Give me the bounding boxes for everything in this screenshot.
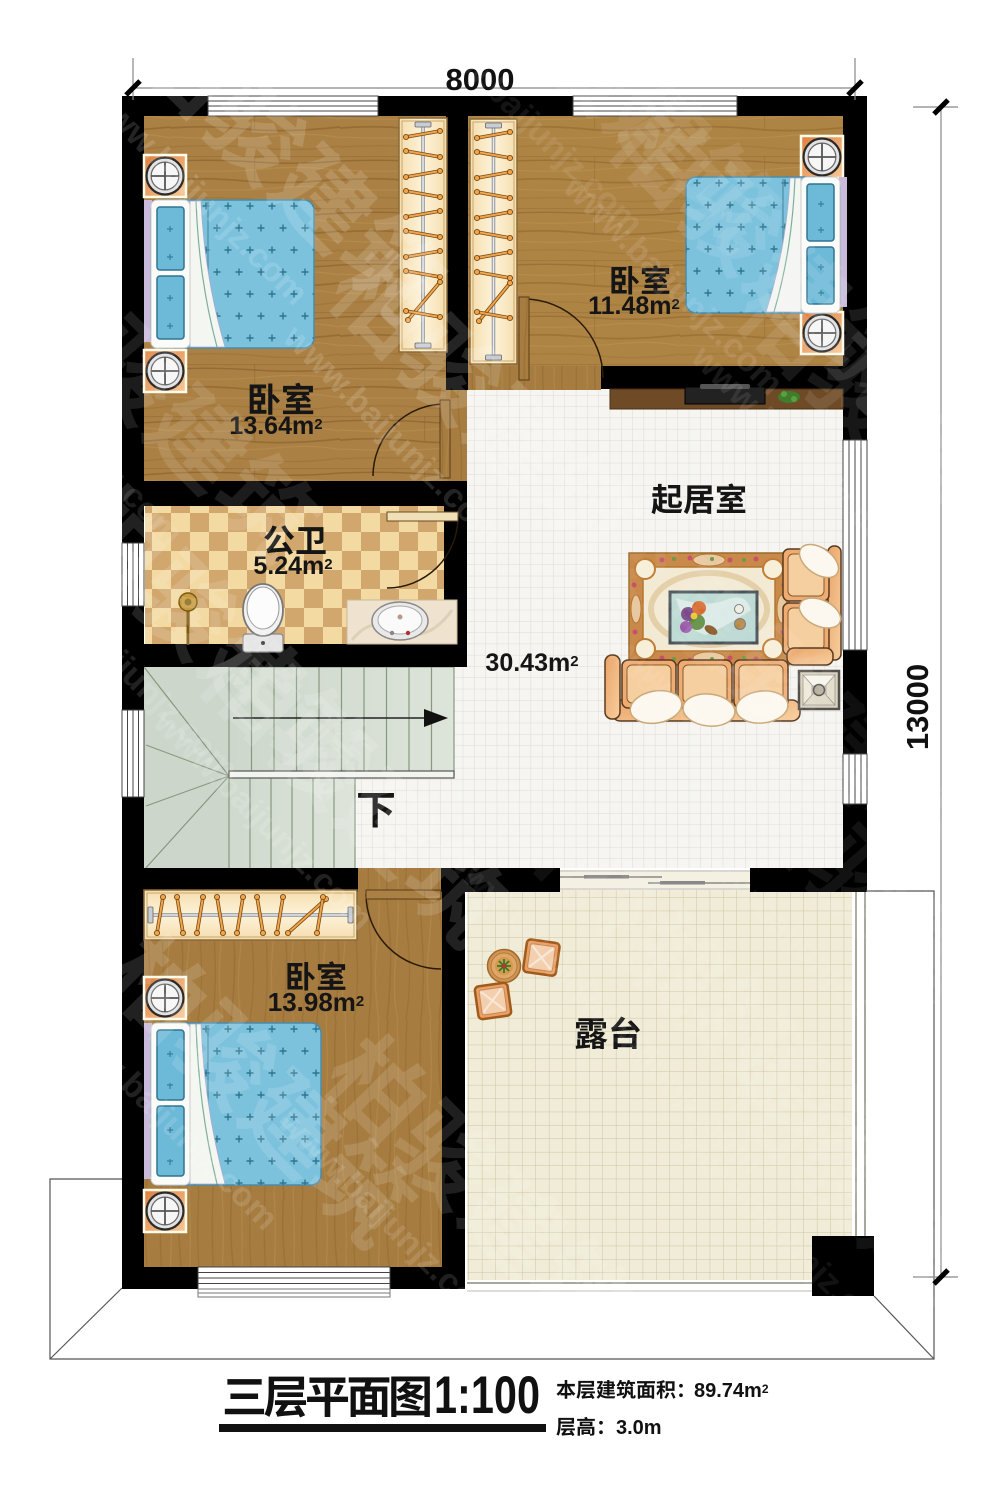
svg-text:89.74m2: 89.74m2 xyxy=(694,1380,769,1402)
svg-text:13.98m2: 13.98m2 xyxy=(268,987,365,1017)
svg-text:3.0m: 3.0m xyxy=(616,1417,662,1439)
svg-text:1:100: 1:100 xyxy=(434,1366,540,1425)
svg-text:30.43m2: 30.43m2 xyxy=(485,649,578,677)
svg-text:13000: 13000 xyxy=(900,664,935,750)
